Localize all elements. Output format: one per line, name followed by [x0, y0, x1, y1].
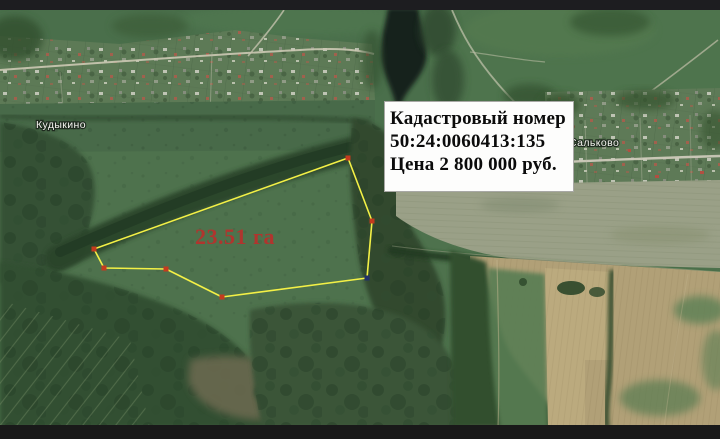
satellite-map: 23.51 га Кудыкино Сальково [0, 0, 720, 439]
parcel-vertex-marker [370, 219, 375, 224]
farm-fields [450, 250, 720, 428]
parcel-vertex-marker [164, 267, 169, 272]
parcel-vertex-marker [346, 156, 351, 161]
parcel-vertex-marker [102, 266, 107, 271]
bottom-letterbox-bar [0, 425, 720, 439]
parcel-vertex-marker [92, 247, 97, 252]
parcel-vertex-marker [220, 295, 225, 300]
place-label-salkovo: Сальково [569, 137, 619, 149]
info-overlay: Кадастровый номер 50:24:0060413:135 Цена… [384, 101, 574, 192]
parcel-area-label: 23.51 га [195, 224, 275, 249]
listing-image: 23.51 га Кудыкино Сальково Кадастровый н… [0, 0, 720, 439]
top-letterbox-bar [0, 0, 720, 10]
info-title: Кадастровый номер [390, 107, 569, 130]
place-label-kudykino: Кудыкино [36, 119, 86, 131]
parcel-vertex-marker [365, 276, 370, 281]
cadastral-number: 50:24:0060413:135 [390, 130, 569, 153]
price: Цена 2 800 000 руб. [390, 153, 569, 176]
